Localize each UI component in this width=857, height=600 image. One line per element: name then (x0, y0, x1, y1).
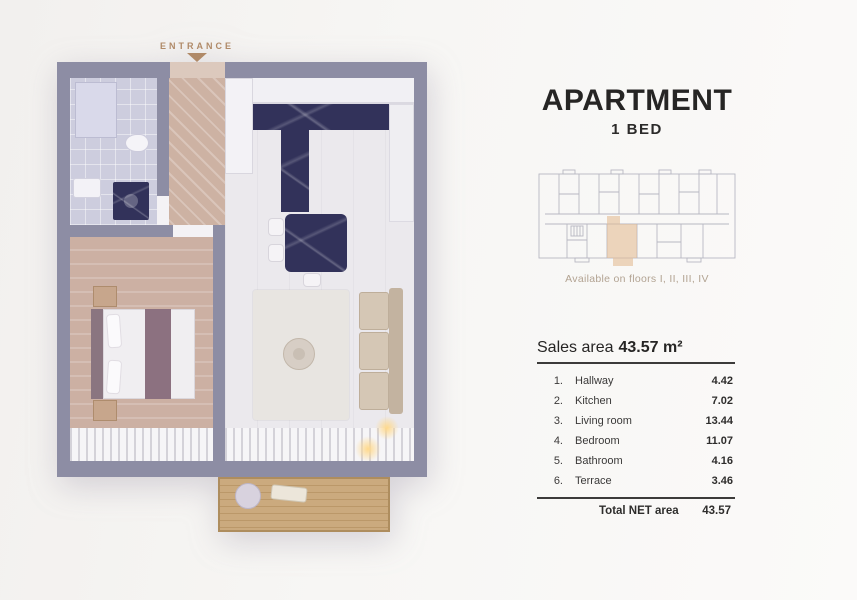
room-name: Bathroom (575, 455, 623, 467)
dining-table (285, 214, 347, 272)
floor-lamp-glow (355, 436, 381, 462)
table-rows: 1. Hallway 4.42 2. Kitchen 7.02 3. Livin… (537, 364, 735, 491)
hallway-wardrobe (225, 78, 253, 174)
wall (225, 62, 427, 78)
pillow (106, 314, 122, 349)
room-area: 3.46 (712, 475, 735, 487)
sofa-cushion (359, 372, 389, 410)
kitchen-side-counter (389, 104, 414, 222)
wall (57, 461, 427, 477)
wall (57, 62, 70, 477)
bed-headboard (91, 309, 103, 399)
bedroom-curtains (70, 428, 213, 461)
floor-lamp-glow (375, 416, 399, 440)
apartment-floor-plan: ENTRANCE (57, 62, 427, 477)
sofa-back (389, 288, 403, 414)
table-row: 1. Hallway 4.42 (537, 371, 735, 391)
room-area: 7.02 (712, 395, 735, 407)
row-number: 1. (537, 375, 563, 387)
room-area: 13.44 (705, 415, 735, 427)
entrance-door-opening (170, 62, 225, 78)
bedroom-living-wall (213, 225, 225, 477)
table-row: 6. Terrace 3.46 (537, 471, 735, 491)
terrace-table (235, 483, 261, 509)
page-subtitle: 1 BED (527, 121, 747, 138)
sofa-cushion (359, 292, 389, 330)
room-name: Hallway (575, 375, 614, 387)
sofa-cushion (359, 332, 389, 370)
dining-chair (303, 273, 321, 287)
rooms-table: 1. Hallway 4.42 2. Kitchen 7.02 3. Livin… (537, 362, 735, 517)
kitchen-cabinets (253, 78, 414, 104)
nightstand (93, 400, 117, 421)
row-number: 5. (537, 455, 563, 467)
bedroom-door-opening (173, 225, 213, 237)
table-row: 4. Bedroom 11.07 (537, 431, 735, 451)
kitchen-peninsula (281, 130, 309, 212)
sales-area-heading: Sales area43.57 m² (537, 339, 683, 357)
kitchen-counter (253, 104, 391, 130)
bathroom-sink (73, 178, 101, 198)
nightstand (93, 286, 117, 307)
wall (414, 62, 427, 477)
room-area: 4.42 (712, 375, 735, 387)
shower (75, 82, 117, 138)
bathroom-door-opening (157, 196, 169, 225)
page-title: APARTMENT (527, 84, 747, 118)
bedroom-wall (70, 225, 173, 237)
total-value: 43.57 (702, 505, 733, 517)
entrance-label: ENTRANCE (127, 41, 267, 51)
total-label: Total NET area (599, 505, 679, 517)
table-total-row: Total NET area 43.57 (537, 499, 735, 517)
row-number: 4. (537, 435, 563, 447)
table-row: 5. Bathroom 4.16 (537, 451, 735, 471)
bed-runner (145, 309, 171, 399)
room-name: Kitchen (575, 395, 612, 407)
apartment-header: APARTMENT 1 BED (527, 84, 747, 138)
sales-area-value: 43.57 m² (619, 339, 683, 356)
toilet (125, 134, 149, 152)
table-row: 3. Living room 13.44 (537, 411, 735, 431)
row-number: 2. (537, 395, 563, 407)
room-name: Living room (575, 415, 632, 427)
dining-chair (268, 218, 284, 236)
room-area: 11.07 (706, 435, 735, 447)
room-area: 4.16 (712, 455, 735, 467)
row-number: 6. (537, 475, 563, 487)
sales-area-label: Sales area (537, 339, 614, 356)
entrance-arrow-icon (187, 53, 207, 62)
dining-chair (268, 244, 284, 262)
bathroom-wall (157, 78, 169, 196)
highlighted-unit (607, 216, 637, 266)
table-row: 2. Kitchen 7.02 (537, 391, 735, 411)
bathroom-vanity (113, 182, 149, 220)
building-floor-location-diagram (537, 166, 737, 268)
room-name: Bedroom (575, 435, 620, 447)
coffee-table (283, 338, 315, 370)
pillow (106, 360, 122, 395)
row-number: 3. (537, 415, 563, 427)
wall (57, 62, 170, 78)
room-name: Terrace (575, 475, 612, 487)
availability-caption: Available on floors I, II, III, IV (527, 273, 747, 285)
